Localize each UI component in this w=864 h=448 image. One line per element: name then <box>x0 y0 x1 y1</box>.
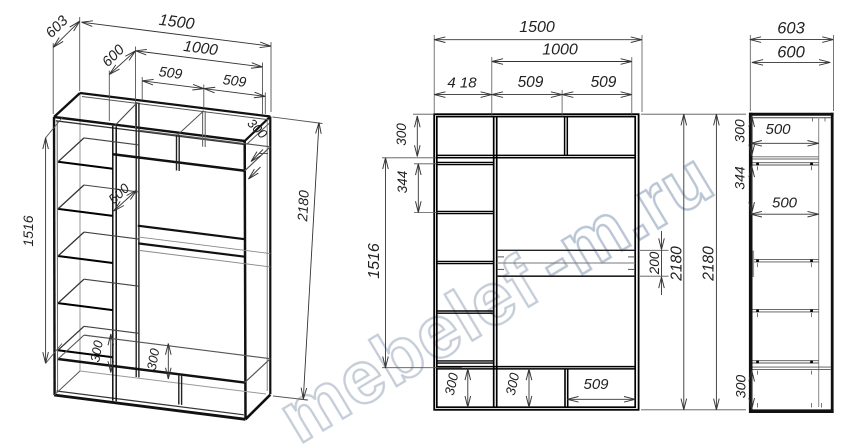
svg-text:300: 300 <box>394 123 409 146</box>
svg-text:2180: 2180 <box>701 246 718 282</box>
svg-text:344: 344 <box>395 171 410 194</box>
svg-text:509: 509 <box>158 63 183 82</box>
svg-text:500: 500 <box>765 121 791 138</box>
svg-text:600: 600 <box>777 44 805 62</box>
svg-text:509: 509 <box>222 71 247 90</box>
svg-text:1516: 1516 <box>20 215 36 246</box>
svg-text:500: 500 <box>772 195 798 212</box>
svg-text:1500: 1500 <box>519 19 555 36</box>
svg-text:344: 344 <box>732 166 748 190</box>
svg-text:300: 300 <box>733 375 749 399</box>
svg-text:509: 509 <box>518 74 544 91</box>
svg-text:1000: 1000 <box>542 42 578 59</box>
svg-text:509: 509 <box>591 74 617 91</box>
svg-text:2180: 2180 <box>669 246 686 282</box>
svg-text:2180: 2180 <box>294 190 312 223</box>
svg-text:603: 603 <box>777 20 805 38</box>
svg-text:509: 509 <box>583 376 609 393</box>
svg-text:4 18: 4 18 <box>447 75 477 92</box>
svg-text:1516: 1516 <box>366 243 383 279</box>
svg-text:200: 200 <box>647 251 662 275</box>
svg-text:300: 300 <box>732 119 748 143</box>
